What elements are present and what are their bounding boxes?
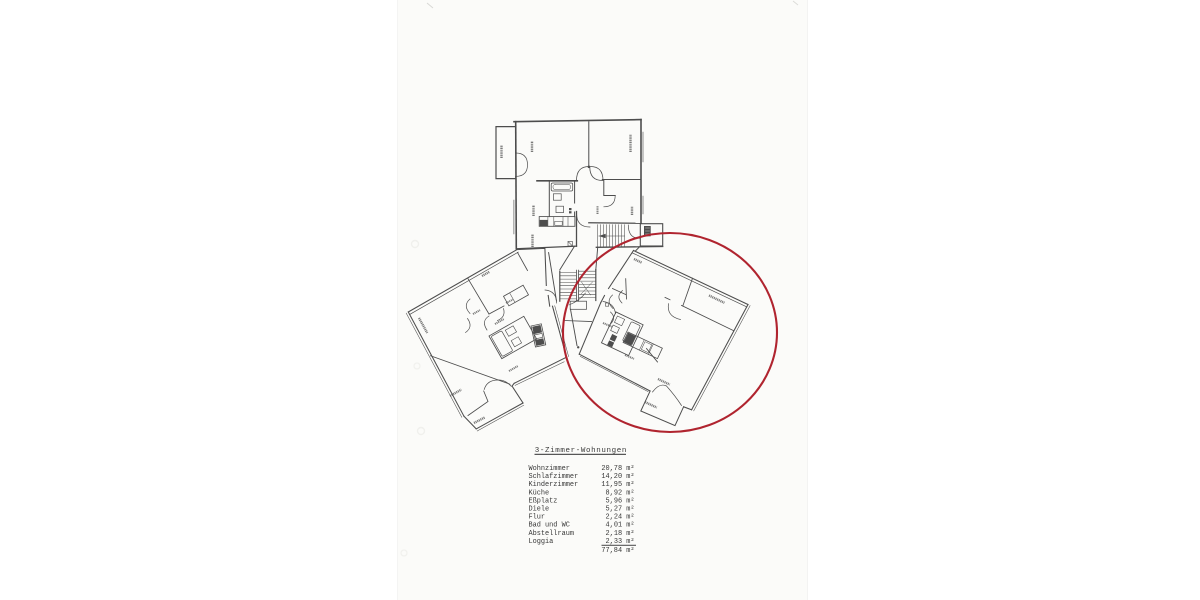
svg-text:Schlafzimmer: Schlafzimmer bbox=[529, 473, 579, 481]
svg-text:Bad und WC: Bad und WC bbox=[529, 522, 570, 530]
svg-text:5,96 m²: 5,96 m² bbox=[606, 497, 635, 505]
svg-text:Kinderzimmer: Kinderzimmer bbox=[529, 481, 579, 489]
svg-text:2,18 m²: 2,18 m² bbox=[606, 530, 635, 538]
svg-text:Flur: Flur bbox=[529, 514, 546, 522]
svg-text:8,92 m²: 8,92 m² bbox=[606, 489, 635, 497]
svg-text:5,27 m²: 5,27 m² bbox=[606, 506, 635, 514]
svg-text:Abstellraum: Abstellraum bbox=[529, 530, 575, 538]
svg-text:Wohnzimmer: Wohnzimmer bbox=[529, 465, 570, 473]
svg-text:Eßplatz: Eßplatz bbox=[529, 497, 558, 505]
svg-text:11,95 m²: 11,95 m² bbox=[601, 481, 634, 489]
svg-text:77,84 m²: 77,84 m² bbox=[601, 547, 634, 555]
svg-text:20,78 m²: 20,78 m² bbox=[601, 465, 634, 473]
svg-text:Küche: Küche bbox=[529, 489, 550, 497]
svg-text:14,20 m²: 14,20 m² bbox=[601, 473, 634, 481]
svg-text:Diele: Diele bbox=[529, 506, 550, 514]
svg-text:2,33 m²: 2,33 m² bbox=[606, 538, 635, 546]
svg-text:2,24 m²: 2,24 m² bbox=[606, 514, 635, 522]
svg-text:4,01 m²: 4,01 m² bbox=[606, 522, 635, 530]
svg-text:Loggia: Loggia bbox=[529, 538, 554, 546]
